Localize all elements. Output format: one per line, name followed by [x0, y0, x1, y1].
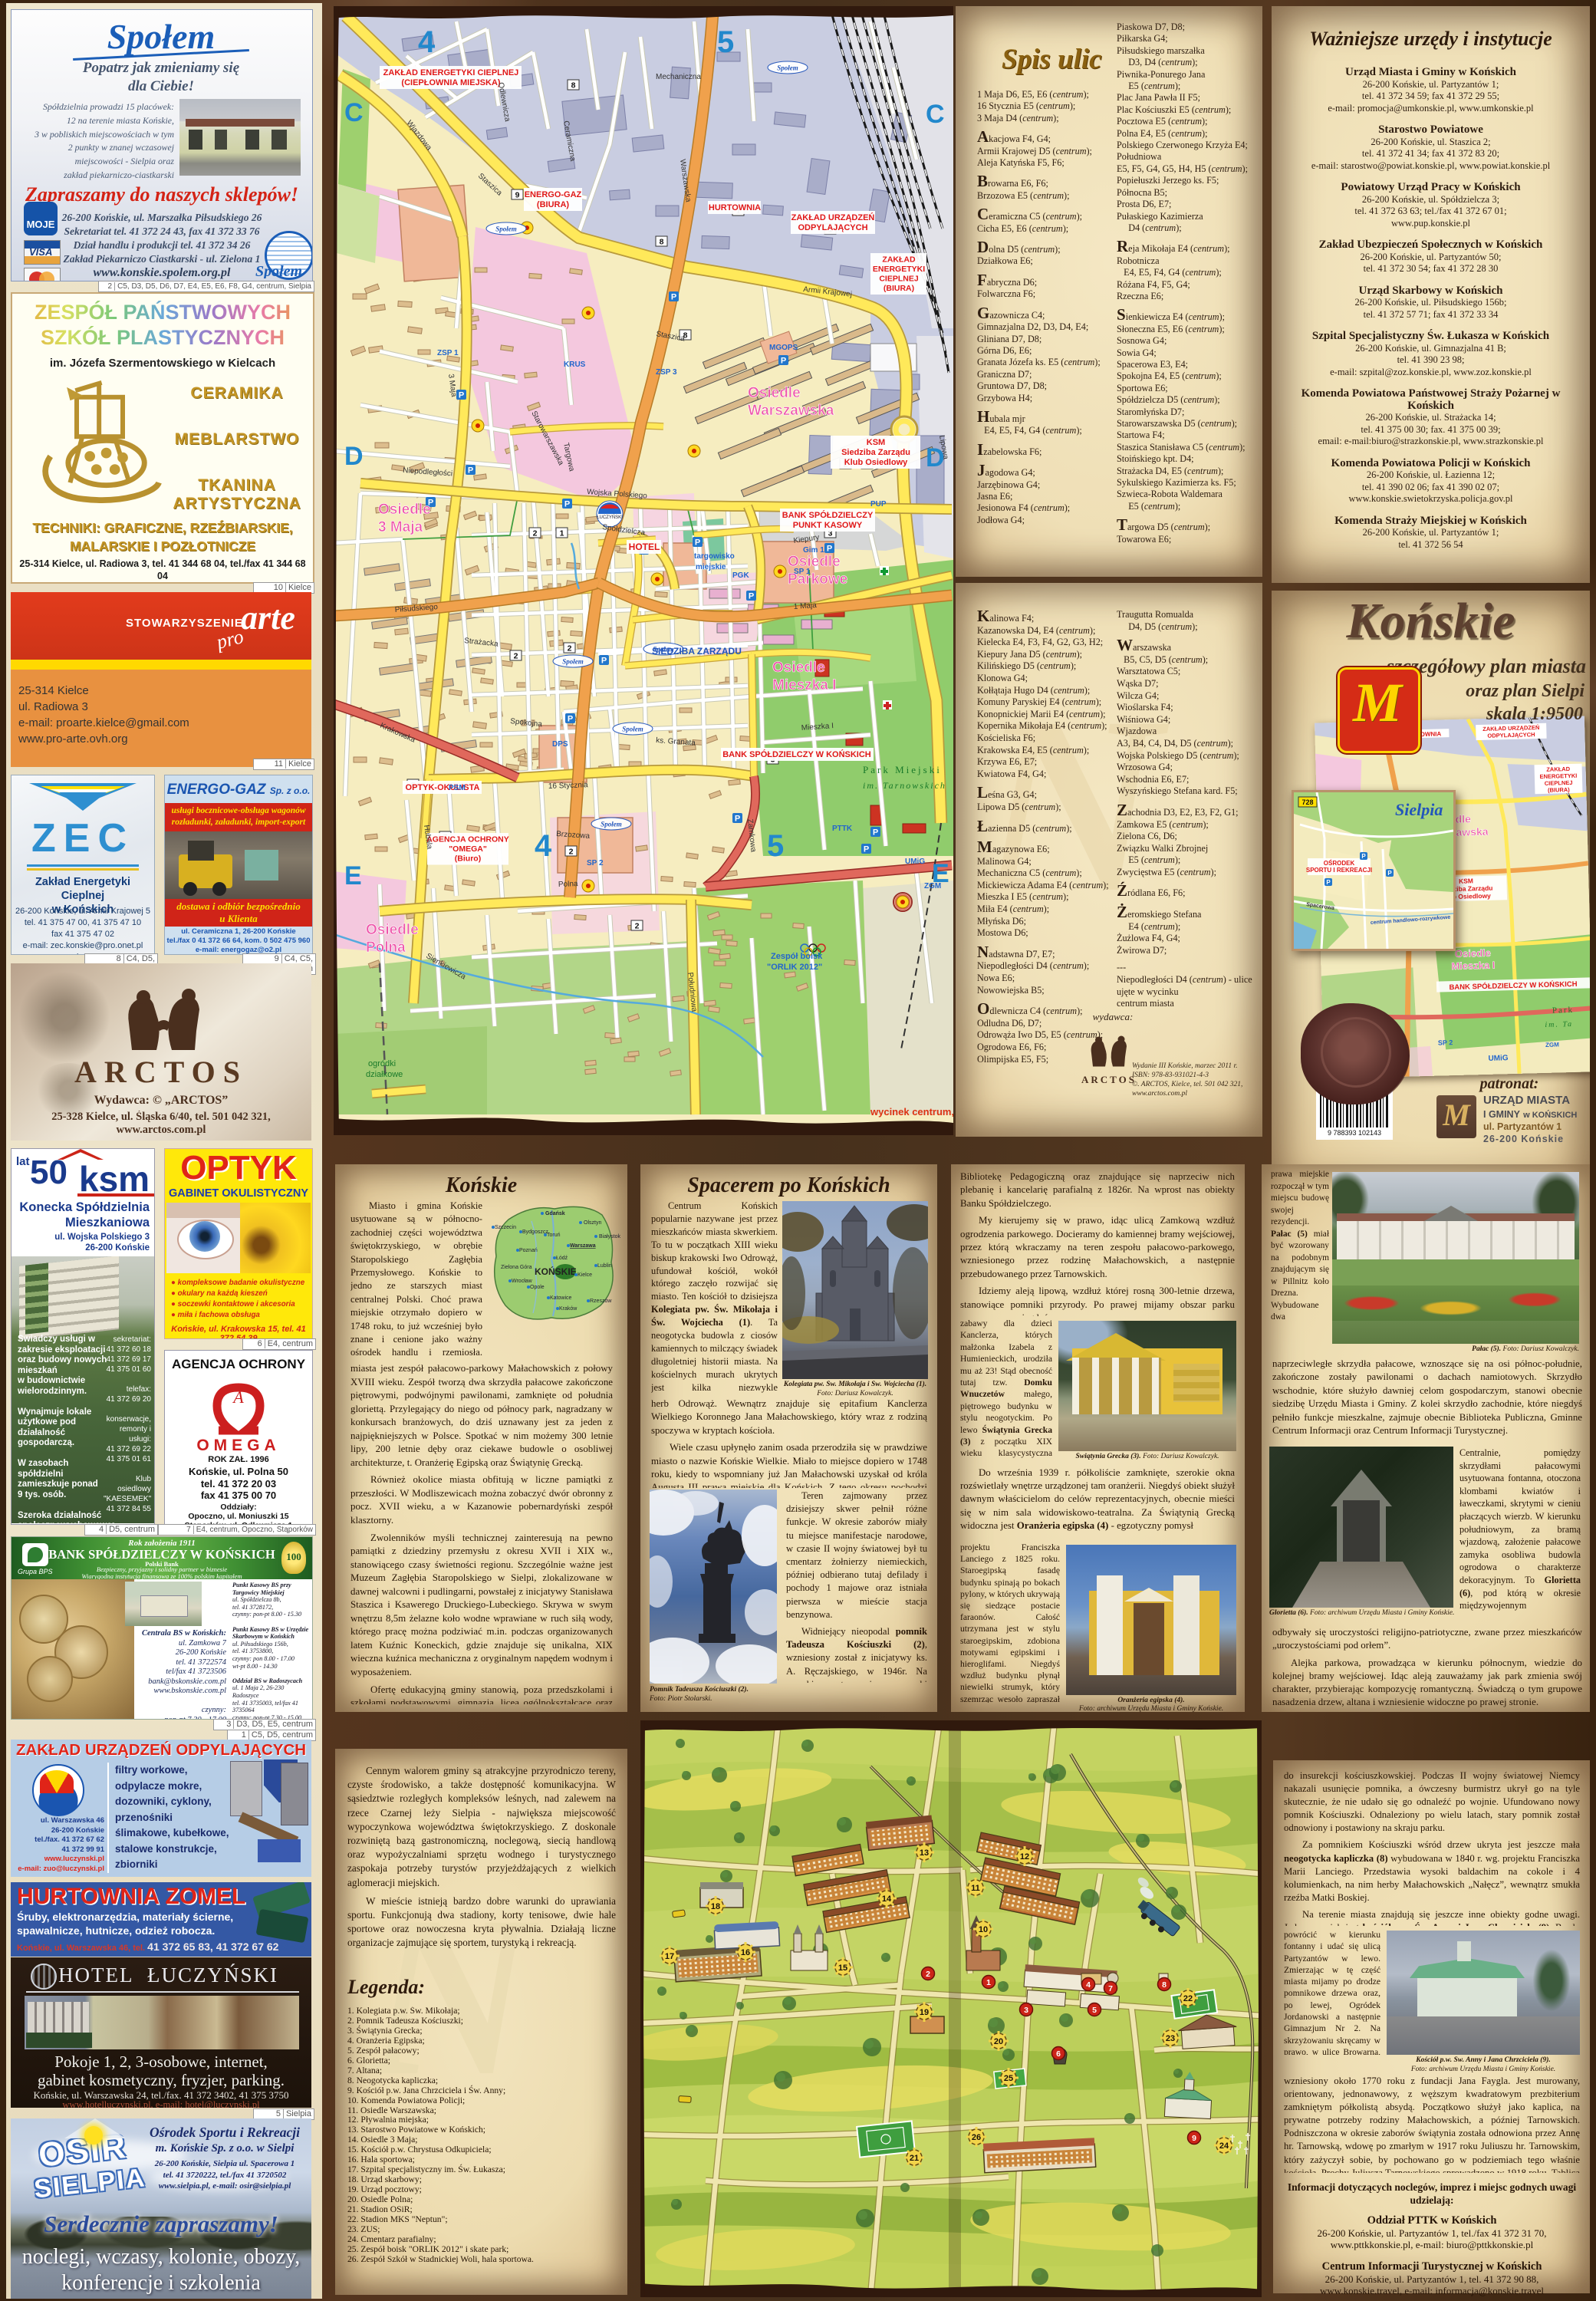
svg-text:Mieszka I: Mieszka I — [1451, 960, 1495, 972]
svg-text:ODPYLAJĄCYCH: ODPYLAJĄCYCH — [1487, 731, 1535, 739]
svg-text:21: 21 — [910, 2154, 919, 2163]
svg-text:20: 20 — [994, 2037, 1003, 2046]
svg-text:HOTEL: HOTEL — [629, 542, 660, 552]
svg-text:im. Tarnowskich: im. Tarnowskich — [863, 780, 946, 791]
svg-text:Zespół boisk: Zespół boisk — [771, 952, 823, 961]
svg-text:6: 6 — [1056, 2049, 1061, 2059]
svg-text:18: 18 — [711, 1902, 720, 1911]
svg-text:7: 7 — [1108, 1984, 1113, 1993]
svg-text:ogródki: ogródki — [368, 1059, 396, 1068]
svg-text:P: P — [749, 592, 754, 601]
svg-text:P: P — [671, 293, 676, 302]
svg-text:P: P — [873, 828, 878, 838]
svg-text:Osiedle: Osiedle — [378, 502, 431, 518]
svg-text:ŁUCZYŃSKI: ŁUCZYŃSKI — [597, 515, 623, 520]
svg-text:1: 1 — [986, 1978, 991, 1987]
svg-text:(BIURA): (BIURA) — [884, 284, 914, 293]
svg-text:13: 13 — [920, 1848, 929, 1858]
svg-text:P: P — [781, 357, 786, 366]
svg-text:P: P — [564, 500, 570, 509]
svg-text:ENERGO-GAZ: ENERGO-GAZ — [525, 190, 582, 199]
svg-text:Sielpia: Sielpia — [1395, 800, 1443, 819]
svg-text:P: P — [1326, 879, 1331, 886]
svg-text:D: D — [344, 442, 364, 471]
svg-text:Opole: Opole — [530, 1285, 545, 1290]
svg-text:P: P — [459, 391, 464, 400]
svg-text:Polna: Polna — [558, 880, 578, 889]
svg-text:CIEPLNEJ: CIEPLNEJ — [879, 275, 919, 284]
svg-text:KOŃSKIE: KOŃSKIE — [535, 1266, 577, 1277]
svg-text:Lublin: Lublin — [597, 1263, 612, 1269]
svg-text:HURTOWNIA: HURTOWNIA — [709, 203, 761, 212]
svg-text:Warszawska: Warszawska — [748, 403, 834, 419]
svg-text:"OMEGA": "OMEGA" — [449, 844, 487, 854]
svg-text:Osiedle: Osiedle — [1455, 947, 1491, 960]
svg-text:Osiedle: Osiedle — [748, 385, 801, 401]
svg-text:Szczecin: Szczecin — [495, 1225, 516, 1230]
svg-text:PSM: PSM — [449, 784, 466, 792]
svg-text:22: 22 — [1183, 1994, 1193, 2003]
svg-text:8: 8 — [571, 81, 576, 91]
svg-text:16 Stycznia: 16 Stycznia — [548, 781, 588, 791]
svg-text:3 Maja: 3 Maja — [378, 519, 423, 535]
svg-text:2: 2 — [568, 644, 572, 653]
svg-text:ZAKŁAD: ZAKŁAD — [882, 255, 916, 265]
svg-text:26: 26 — [972, 2133, 981, 2142]
svg-text:(Biuro): (Biuro) — [455, 854, 481, 864]
svg-text:P: P — [601, 657, 607, 666]
svg-text:(CIEPŁOWNIA MIEJSKA): (CIEPŁOWNIA MIEJSKA) — [401, 78, 500, 87]
svg-text:ZAKŁAD ENERGETYKI CIEPLNEJ: ZAKŁAD ENERGETYKI CIEPLNEJ — [383, 68, 519, 77]
svg-text:"ORLIK 2012": "ORLIK 2012" — [767, 963, 822, 972]
svg-text:P: P — [1387, 870, 1392, 877]
svg-text:Gim 1: Gim 1 — [803, 546, 824, 555]
svg-text:Polna: Polna — [366, 940, 406, 956]
svg-text:Społem: Społem — [777, 64, 798, 72]
svg-text:P: P — [568, 715, 573, 724]
svg-text:MGOPS: MGOPS — [769, 344, 798, 352]
svg-text:Społem: Społem — [562, 658, 584, 666]
svg-text:ODPYLAJĄCYCH: ODPYLAJĄCYCH — [798, 223, 867, 232]
svg-text:działkowe: działkowe — [366, 1070, 403, 1079]
svg-text:8: 8 — [1162, 1980, 1167, 1990]
svg-text:19: 19 — [920, 2008, 929, 2017]
svg-text:4: 4 — [1086, 1980, 1091, 1990]
svg-text:4: 4 — [535, 829, 552, 863]
svg-text:2: 2 — [635, 922, 640, 931]
svg-text:KRUS: KRUS — [564, 360, 586, 369]
svg-text:P: P — [1361, 853, 1366, 860]
svg-text:E: E — [932, 859, 949, 888]
svg-text:Katowice: Katowice — [550, 1295, 572, 1301]
svg-text:2: 2 — [926, 1970, 930, 1979]
svg-text:9: 9 — [1192, 2134, 1196, 2143]
svg-text:Mechaniczna: Mechaniczna — [656, 73, 701, 81]
svg-text:targowisko: targowisko — [694, 552, 735, 561]
svg-text:2: 2 — [569, 848, 574, 857]
svg-text:24: 24 — [1219, 2141, 1229, 2151]
svg-text:im. Ta: im. Ta — [1545, 1020, 1573, 1029]
svg-text:Klub Osiedlowy: Klub Osiedlowy — [844, 458, 908, 467]
svg-text:SP 2: SP 2 — [1438, 1039, 1453, 1047]
svg-text:(BIURA): (BIURA) — [1548, 786, 1570, 794]
svg-text:ZSP 3: ZSP 3 — [656, 368, 677, 377]
svg-text:Łódź: Łódź — [556, 1256, 568, 1261]
svg-text:UMiG: UMiG — [1488, 1054, 1509, 1063]
svg-text:ZAKŁAD URZĄDZEŃ: ZAKŁAD URZĄDZEŃ — [791, 212, 875, 222]
svg-text:ZGM: ZGM — [1545, 1041, 1559, 1048]
svg-text:5: 5 — [1092, 2006, 1097, 2015]
svg-text:P: P — [735, 815, 740, 824]
svg-text:5: 5 — [717, 25, 734, 59]
svg-text:KSM: KSM — [867, 438, 885, 447]
svg-text:ENERGETYKI: ENERGETYKI — [873, 265, 925, 274]
svg-text:25: 25 — [1004, 2074, 1013, 2083]
svg-text:2: 2 — [514, 652, 518, 661]
svg-text:PTTK: PTTK — [832, 825, 853, 833]
svg-text:E: E — [344, 861, 362, 890]
svg-text:1 Maja: 1 Maja — [793, 601, 817, 611]
svg-text:Wrocław: Wrocław — [512, 1279, 533, 1284]
svg-text:A: A — [232, 1388, 244, 1407]
svg-text:Osiedle: Osiedle — [366, 922, 419, 938]
svg-text:Rzeszów: Rzeszów — [590, 1299, 612, 1304]
svg-text:AGENCJA OCHRONY: AGENCJA OCHRONY — [426, 835, 509, 844]
svg-text:4: 4 — [418, 25, 436, 59]
svg-text:SP 2: SP 2 — [587, 859, 604, 867]
svg-text:Poznań: Poznań — [519, 1248, 538, 1253]
svg-text:Kielce: Kielce — [578, 1272, 592, 1278]
svg-text:14: 14 — [882, 1894, 892, 1904]
svg-text:Białystok: Białystok — [599, 1234, 621, 1239]
svg-text:8: 8 — [660, 238, 664, 247]
svg-text:728: 728 — [1301, 798, 1313, 806]
svg-text:C: C — [926, 100, 945, 129]
svg-text:P: P — [695, 538, 700, 548]
svg-text:Toruń: Toruń — [547, 1233, 561, 1238]
svg-text:2: 2 — [533, 529, 538, 538]
svg-text:P: P — [864, 845, 869, 854]
svg-text:5: 5 — [767, 829, 784, 863]
svg-text:Park: Park — [1552, 1006, 1574, 1016]
svg-text:Społem: Społem — [622, 726, 643, 733]
svg-text:Osiedle: Osiedle — [772, 660, 825, 676]
svg-text:Siedziba Zarządu: Siedziba Zarządu — [841, 448, 910, 457]
svg-text:17: 17 — [665, 1952, 674, 1961]
svg-text:15: 15 — [838, 1964, 847, 1973]
svg-text:12: 12 — [1020, 1852, 1029, 1862]
svg-text:D: D — [926, 443, 945, 472]
svg-text:9: 9 — [515, 191, 520, 200]
svg-text:SP 1: SP 1 — [794, 568, 811, 576]
svg-text:C: C — [344, 98, 364, 127]
svg-text:P: P — [468, 466, 473, 476]
svg-text:11: 11 — [971, 1884, 980, 1893]
svg-text:BANK SPÓŁDZIELCZY: BANK SPÓŁDZIELCZY — [782, 510, 874, 520]
svg-text:Park Miejski: Park Miejski — [863, 764, 942, 775]
svg-text:Zielona Góra: Zielona Góra — [501, 1265, 532, 1270]
svg-text:Warszawa: Warszawa — [570, 1243, 596, 1249]
svg-text:OPTYK-OKULISTA: OPTYK-OKULISTA — [406, 783, 480, 792]
svg-text:UMiG: UMiG — [905, 858, 925, 866]
svg-text:OŚRODEK: OŚRODEK — [1324, 860, 1355, 867]
svg-text:Mieszka I: Mieszka I — [772, 677, 836, 693]
svg-text:Społem: Społem — [601, 821, 622, 828]
svg-text:(BIURA): (BIURA) — [537, 200, 569, 209]
svg-text:1: 1 — [560, 529, 564, 538]
svg-text:Olsztyn: Olsztyn — [584, 1220, 601, 1226]
svg-text:10: 10 — [979, 1925, 988, 1934]
svg-text:Kraków: Kraków — [559, 1306, 578, 1312]
svg-text:PGK: PGK — [732, 571, 749, 580]
svg-text:BANK SPÓŁDZIELCZY W KOŃSKICH: BANK SPÓŁDZIELCZY W KOŃSKICH — [722, 749, 871, 759]
svg-text:ZSP 1: ZSP 1 — [437, 349, 459, 357]
svg-text:P: P — [827, 545, 832, 554]
svg-text:PUP: PUP — [870, 500, 887, 509]
svg-text:PUNKT KASOWY: PUNKT KASOWY — [793, 521, 863, 530]
svg-text:DPS: DPS — [552, 740, 568, 749]
svg-text:Społem: Społem — [495, 225, 517, 233]
svg-text:16: 16 — [741, 1948, 750, 1957]
svg-text:SPORTU I REKREACJI: SPORTU I REKREACJI — [1306, 867, 1372, 874]
svg-text:3: 3 — [1024, 2006, 1028, 2015]
svg-text:23: 23 — [1166, 2034, 1175, 2043]
svg-text:SIEDZIBA ZARZĄDU: SIEDZIBA ZARZĄDU — [652, 646, 742, 657]
svg-text:miejskie: miejskie — [696, 563, 726, 571]
svg-text:KSM: KSM — [1459, 877, 1473, 884]
svg-text:wycinek centrum, skala 1:4750: wycinek centrum, skala 1:4750 — [870, 1106, 953, 1118]
svg-text:Gdańsk: Gdańsk — [545, 1211, 565, 1216]
